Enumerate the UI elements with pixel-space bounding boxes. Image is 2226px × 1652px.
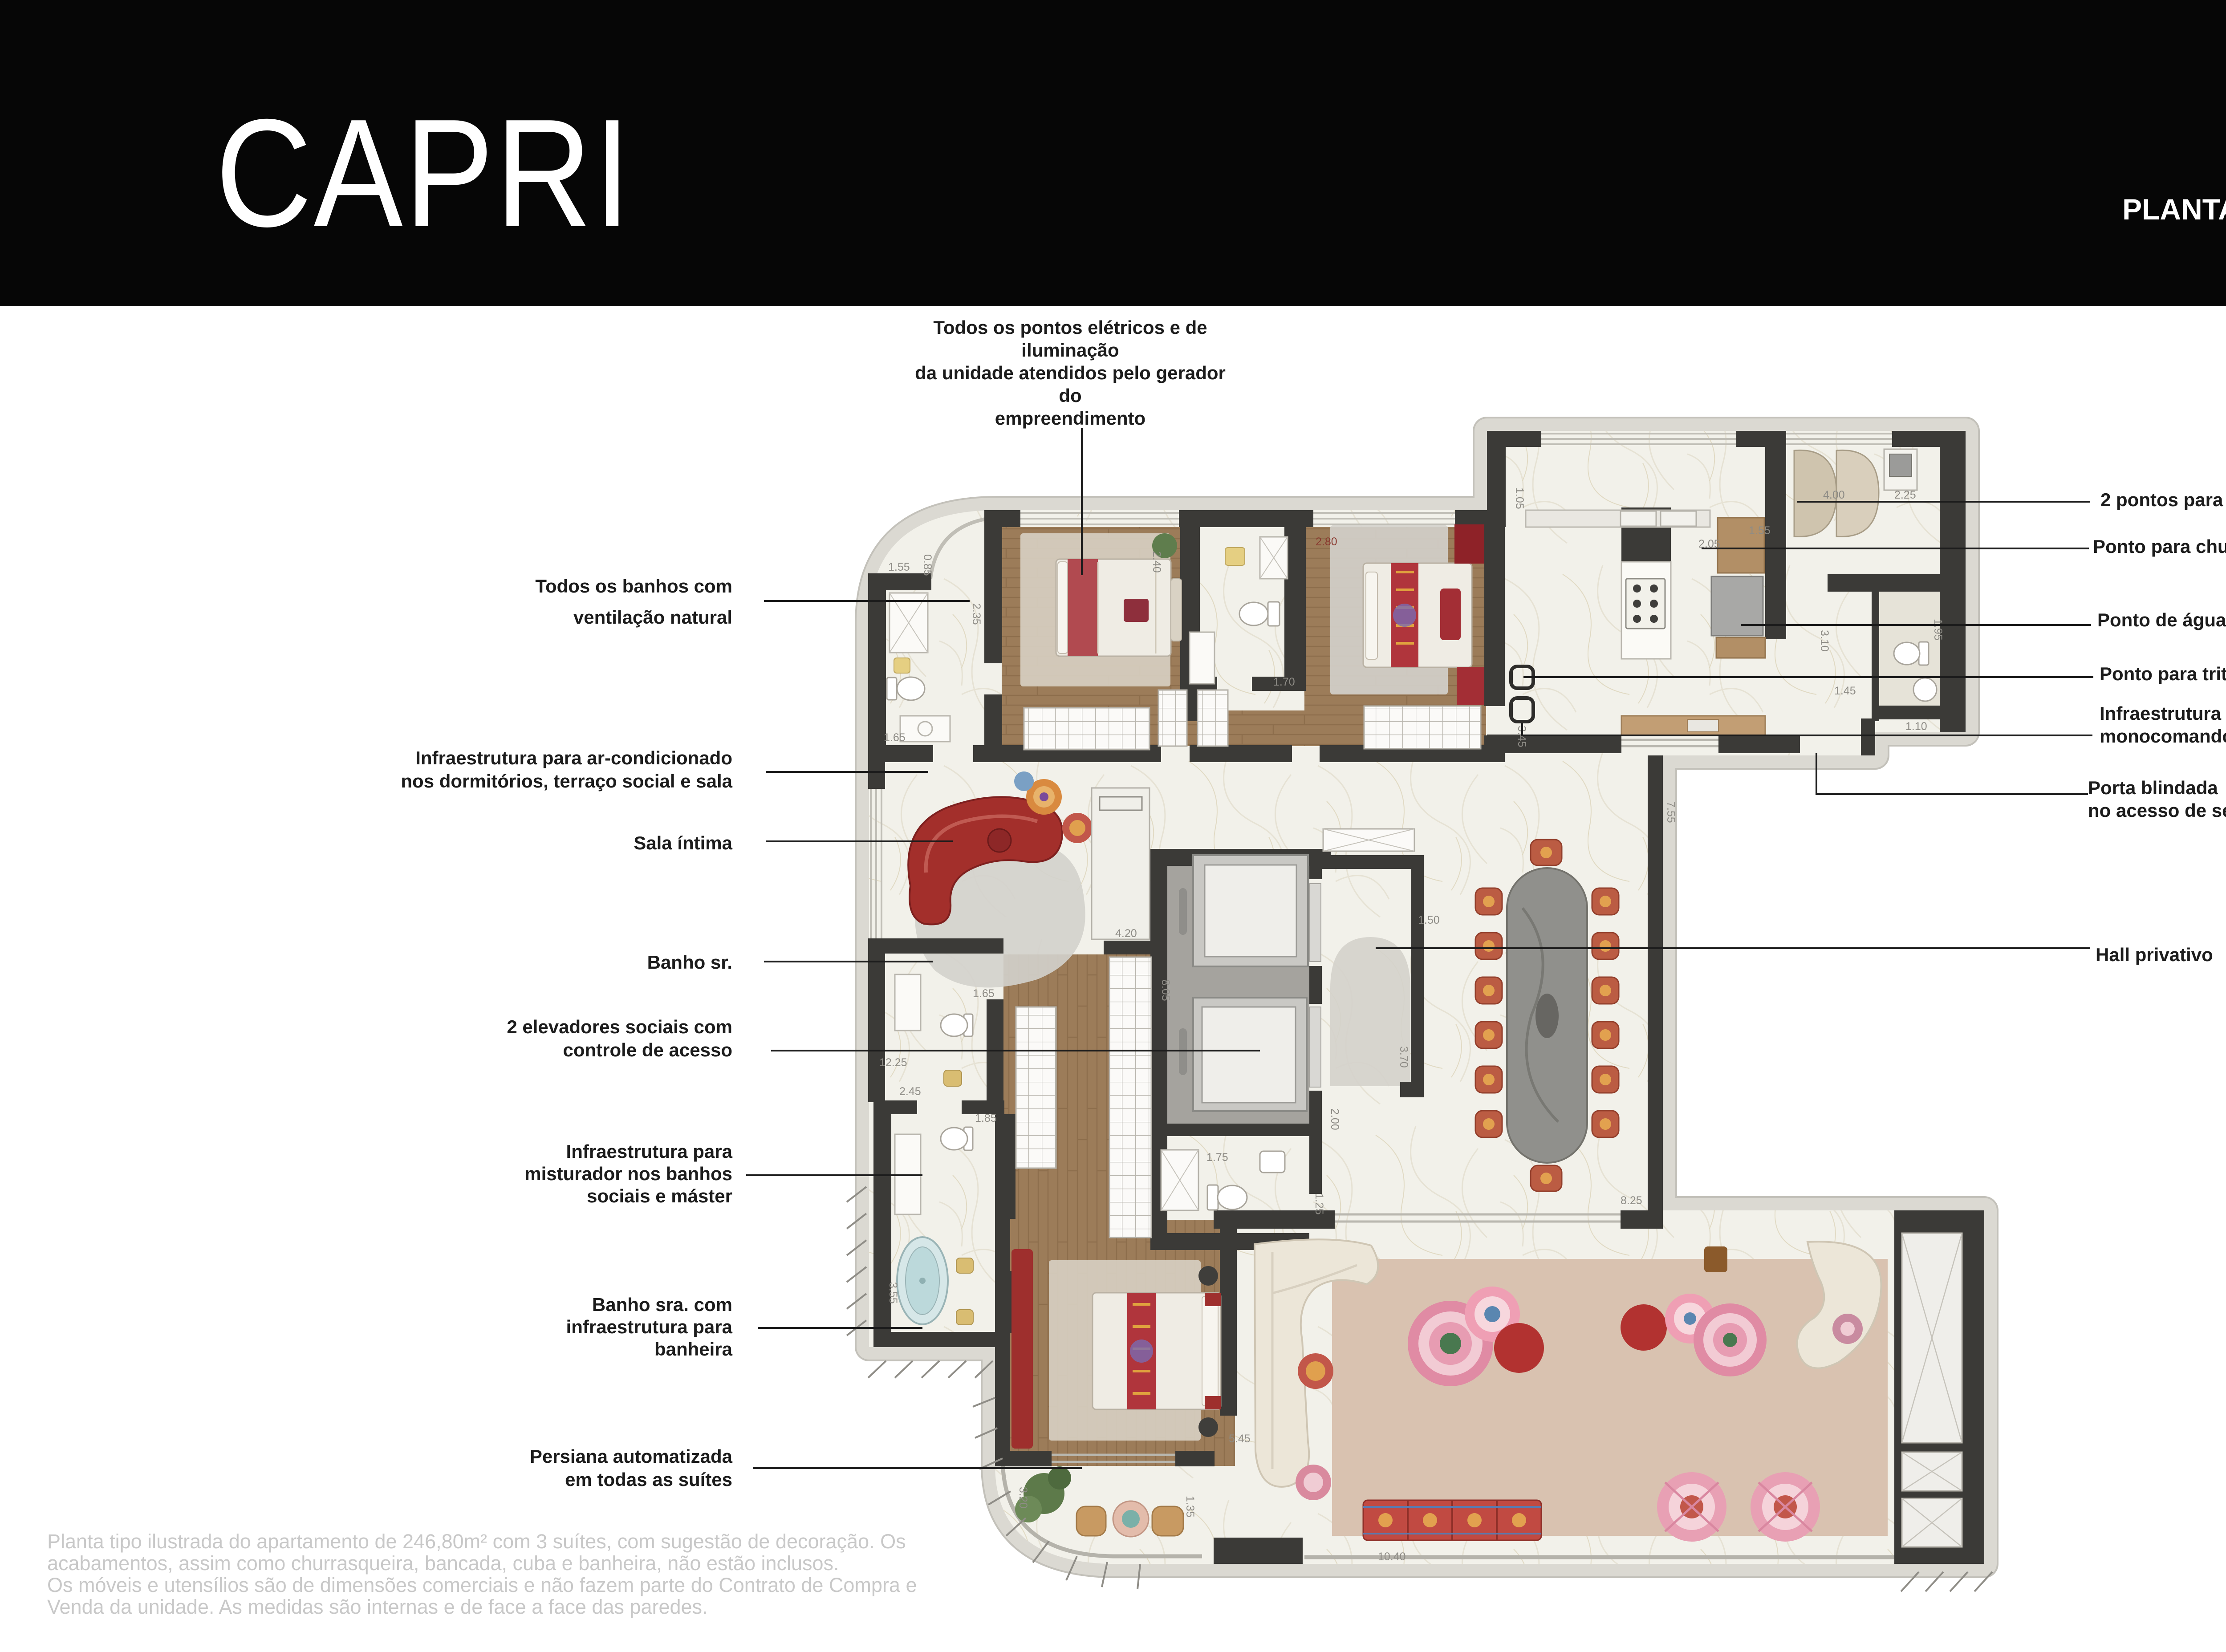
svg-text:8.05: 8.05 — [1159, 979, 1172, 1001]
svg-text:2.25: 2.25 — [1894, 489, 1916, 501]
svg-text:1.95: 1.95 — [1932, 619, 1944, 641]
svg-text:4.20: 4.20 — [1115, 927, 1137, 940]
svg-text:3.20: 3.20 — [1017, 1487, 1029, 1509]
svg-text:2.45: 2.45 — [899, 1085, 921, 1098]
svg-text:1.50: 1.50 — [1418, 914, 1440, 926]
svg-text:2.35: 2.35 — [970, 603, 983, 625]
svg-text:3.55: 3.55 — [887, 1282, 899, 1304]
svg-text:2.00: 2.00 — [1328, 1108, 1341, 1130]
svg-text:2.40: 2.40 — [1150, 551, 1163, 573]
svg-text:1.45: 1.45 — [1834, 685, 1856, 697]
svg-text:1.65: 1.65 — [884, 731, 906, 744]
svg-text:1.05: 1.05 — [1513, 487, 1526, 509]
svg-text:8.25: 8.25 — [1621, 1194, 1642, 1207]
svg-text:1.70: 1.70 — [1273, 676, 1295, 688]
svg-text:1.25: 1.25 — [1313, 1193, 1325, 1215]
svg-text:12.25: 12.25 — [879, 1056, 907, 1069]
svg-text:1.75: 1.75 — [1206, 1151, 1228, 1164]
svg-text:7.55: 7.55 — [1665, 801, 1677, 823]
svg-text:1.65: 1.65 — [973, 987, 995, 1000]
svg-text:3.70: 3.70 — [1397, 1046, 1410, 1068]
svg-text:1.55: 1.55 — [888, 561, 910, 573]
svg-text:2.80: 2.80 — [1316, 536, 1337, 548]
svg-text:5.45: 5.45 — [1229, 1433, 1251, 1445]
svg-text:1.55: 1.55 — [1749, 524, 1771, 537]
svg-text:0.85: 0.85 — [921, 554, 934, 576]
svg-text:4.00: 4.00 — [1823, 489, 1845, 501]
svg-text:1.10: 1.10 — [1905, 720, 1927, 733]
svg-text:1.85: 1.85 — [975, 1112, 997, 1124]
svg-text:1.35: 1.35 — [1184, 1496, 1196, 1518]
svg-text:3.10: 3.10 — [1818, 630, 1831, 652]
svg-text:10.40: 10.40 — [1378, 1551, 1406, 1563]
